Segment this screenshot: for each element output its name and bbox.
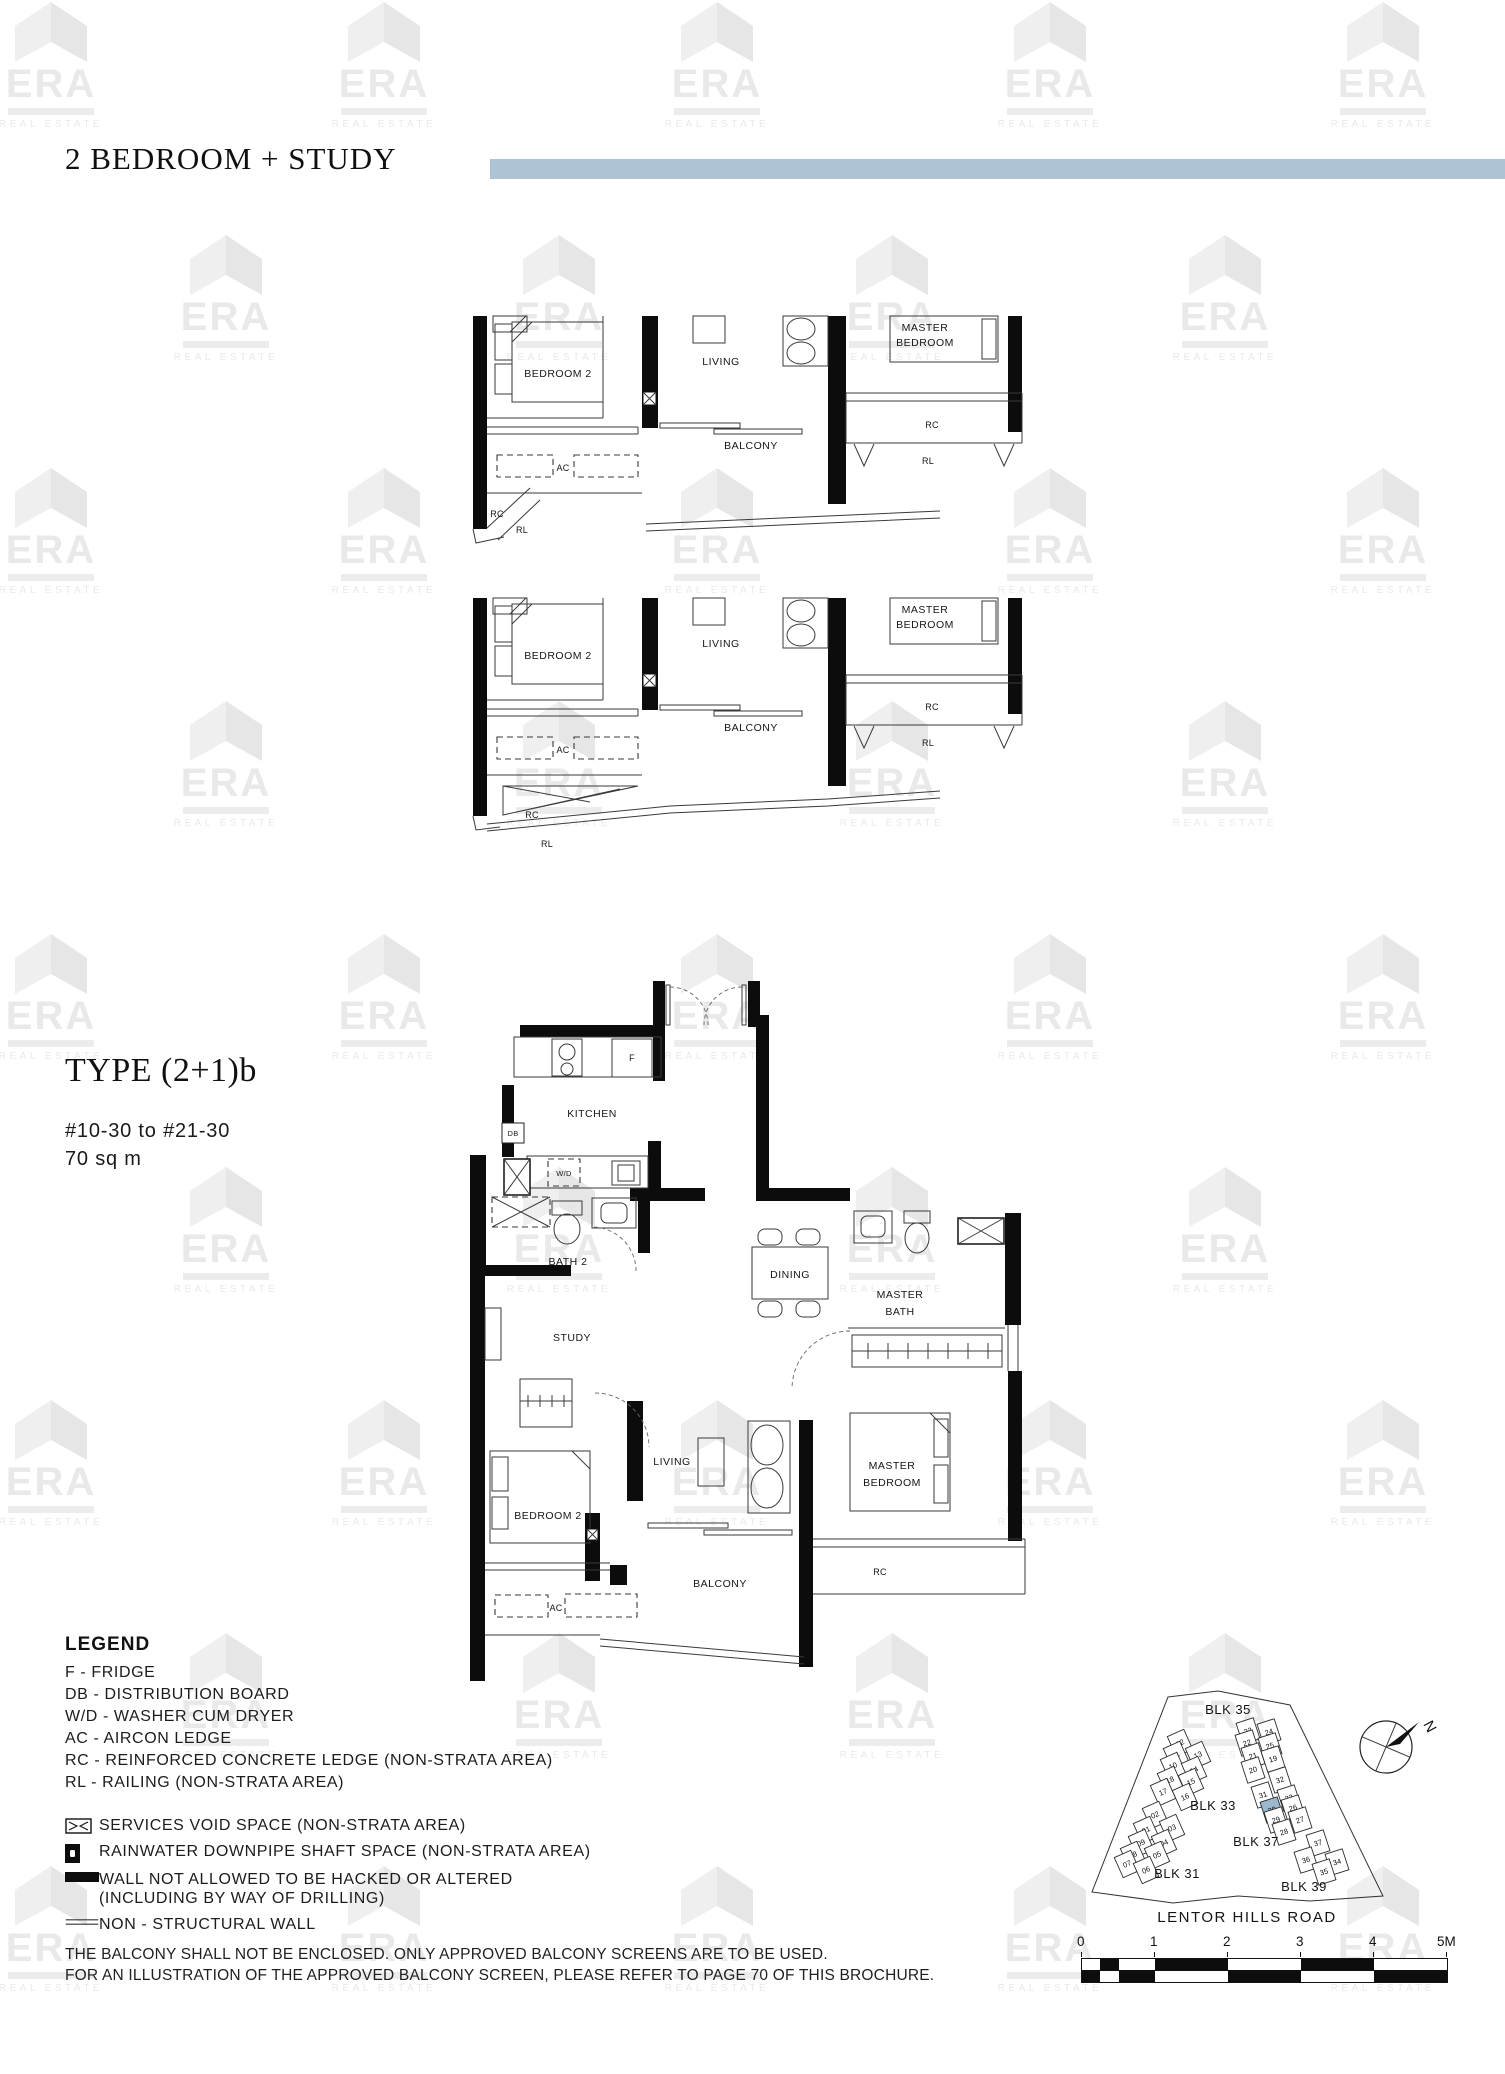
room-label-bedroom: BEDROOM <box>896 337 954 349</box>
room-label-bedroom2: BEDROOM 2 <box>524 368 592 380</box>
scale-segment <box>1100 1959 1119 1970</box>
sink <box>861 1216 885 1237</box>
label-ac: AC <box>549 1603 562 1613</box>
stove <box>552 1039 582 1076</box>
scale-segment <box>1119 1959 1155 1970</box>
room-label-master: MASTER <box>902 604 949 616</box>
disclaimer: THE BALCONY SHALL NOT BE ENCLOSED. ONLY … <box>65 1944 934 1986</box>
bedroom2-furniture <box>487 598 603 700</box>
room-label-bedroom: BEDROOM <box>896 619 954 631</box>
scale-segment <box>1228 1971 1301 1982</box>
label-rc: RC <box>925 702 939 712</box>
label-rc: RC <box>490 509 504 519</box>
room-label-kitchen: KITCHEN <box>567 1108 617 1120</box>
block-label-31: BLK 31 <box>1154 1866 1200 1881</box>
ac-ledge <box>574 455 638 477</box>
scale-segment <box>1082 1959 1100 1970</box>
ac-ledge <box>497 455 553 477</box>
floor-plan-upper-1: BEDROOM 2 AC RC RL BALCONY LIVING MASTER… <box>470 316 1030 566</box>
legend-symbol-label2: (INCLUDING BY WAY OF DRILLING) <box>99 1890 385 1907</box>
legend-item: DB - DISTRIBUTION BOARD <box>65 1684 625 1706</box>
legend-symbol-label: SERVICES VOID SPACE (NON-STRATA AREA) <box>99 1816 466 1835</box>
scale-segment <box>1374 1971 1447 1982</box>
label-rc: RC <box>925 420 939 430</box>
scale-segment <box>1155 1971 1228 1982</box>
scale-segment <box>1082 1971 1100 1982</box>
block-label-37: BLK 37 <box>1233 1834 1279 1849</box>
toilet <box>554 1214 580 1244</box>
study-shelf <box>485 1308 501 1360</box>
scale-labels: 0 1 2 3 4 5M <box>1081 1934 1461 1952</box>
legend-symbol-label: RAINWATER DOWNPIPE SHAFT SPACE (NON-STRA… <box>99 1842 591 1861</box>
unit-type-name: TYPE (2+1)b <box>65 1052 257 1090</box>
unit-floor-range: #10-30 to #21-30 <box>65 1120 230 1143</box>
scale-label: 3 <box>1296 1934 1304 1949</box>
label-ac: AC <box>556 745 569 755</box>
label-db: DB <box>507 1129 518 1138</box>
scale-label: 0 <box>1077 1934 1085 1949</box>
room-label-bath2: BATH 2 <box>549 1256 588 1268</box>
bath2-door-arc <box>592 1227 636 1271</box>
bedroom2-furniture <box>487 316 603 418</box>
scale-bar: 0 1 2 3 4 5M <box>1081 1934 1461 1952</box>
compass-icon: N <box>1352 1713 1440 1781</box>
hack-wall-icon <box>65 1872 99 1882</box>
disclaimer-line-2: FOR AN ILLUSTRATION OF THE APPROVED BALC… <box>65 1965 934 1986</box>
scale-segment <box>1228 1959 1301 1970</box>
room-label-balcony: BALCONY <box>724 722 778 734</box>
scale-label: 2 <box>1223 1934 1231 1949</box>
room-label-study: STUDY <box>553 1332 591 1344</box>
legend: LEGEND F - FRIDGE DB - DISTRIBUTION BOAR… <box>65 1634 625 1934</box>
disclaimer-line-1: THE BALCONY SHALL NOT BE ENCLOSED. ONLY … <box>65 1944 934 1965</box>
sofa <box>748 1421 790 1513</box>
toilet <box>905 1223 929 1253</box>
entry-door-arc <box>670 987 708 1025</box>
legend-symbol-label: WALL NOT ALLOWED TO BE HACKED OR ALTERED <box>99 1871 513 1888</box>
label-fridge: F <box>629 1053 635 1063</box>
services-void-icon <box>65 1818 99 1834</box>
tv-console <box>698 1438 724 1486</box>
label-ac: AC <box>556 463 569 473</box>
walls <box>470 981 1022 1681</box>
room-label-master-bath-2: BATH <box>885 1306 914 1318</box>
floor-plan-main: F KITCHEN DB W/D BATH 2 STUDY <box>452 973 1032 1713</box>
room-label-master-1: MASTER <box>869 1460 916 1472</box>
room-label-bedroom2: BEDROOM 2 <box>524 650 592 662</box>
label-rl: RL <box>516 525 528 535</box>
floor-plan-upper-2: BEDROOM 2 AC RC RL BALCONY LIVING MASTER… <box>470 598 1030 866</box>
unit-area: 70 sq m <box>65 1148 142 1171</box>
room-label-balcony: BALCONY <box>693 1578 747 1590</box>
ac-ledge <box>565 1594 637 1617</box>
brochure-page: ERAREAL ESTATEERAREAL ESTATEERAREAL ESTA… <box>0 0 1505 2074</box>
label-rl: RL <box>922 456 934 466</box>
block-label-35: BLK 35 <box>1205 1702 1251 1717</box>
room-label-dining: DINING <box>770 1269 810 1281</box>
block-label-33: BLK 33 <box>1190 1798 1236 1813</box>
room-label-living: LIVING <box>702 356 739 368</box>
room-label-master: MASTER <box>902 322 949 334</box>
room-label-living: LIVING <box>702 638 739 650</box>
sink <box>601 1203 627 1223</box>
room-label-bedroom2: BEDROOM 2 <box>514 1510 582 1522</box>
legend-item: AC - AIRCON LEDGE <box>65 1728 625 1750</box>
legend-symbol-label: NON - STRUCTURAL WALL <box>99 1915 316 1934</box>
label-rc: RC <box>873 1567 887 1577</box>
scale-segment <box>1155 1959 1228 1970</box>
compass-north-label: N <box>1419 1718 1439 1736</box>
scale-label: 5M <box>1437 1934 1456 1949</box>
ac-ledge <box>497 737 553 759</box>
room-label-master-bath-1: MASTER <box>877 1289 924 1301</box>
legend-heading: LEGEND <box>65 1634 625 1656</box>
label-rc: RC <box>525 810 539 820</box>
entry-door-arc <box>704 987 742 1025</box>
room-label-master-2: BEDROOM <box>863 1477 921 1489</box>
scale-label: 1 <box>1150 1934 1158 1949</box>
label-rl: RL <box>541 839 553 849</box>
scale-label: 4 <box>1369 1934 1377 1949</box>
legend-item: RL - RAILING (NON-STRATA AREA) <box>65 1772 625 1794</box>
room-label-living: LIVING <box>653 1456 690 1468</box>
page-title: 2 BEDROOM + STUDY <box>65 141 397 177</box>
ac-ledge <box>574 737 638 759</box>
ac-ledge <box>495 1595 548 1617</box>
label-rl: RL <box>922 738 934 748</box>
label-wd: W/D <box>556 1169 572 1178</box>
scale-segment <box>1100 1971 1119 1982</box>
legend-item: RC - REINFORCED CONCRETE LEDGE (NON-STRA… <box>65 1750 625 1772</box>
legend-item: W/D - WASHER CUM DRYER <box>65 1706 625 1728</box>
header-accent-bar <box>490 159 1505 179</box>
master-bath-door-arc <box>792 1331 850 1389</box>
scale-segment <box>1301 1959 1374 1970</box>
non-structural-wall-icon <box>65 1917 99 1927</box>
road-label: LENTOR HILLS ROAD <box>1157 1909 1336 1926</box>
room-label-balcony: BALCONY <box>724 440 778 452</box>
block-label-39: BLK 39 <box>1281 1879 1327 1894</box>
scale-segment <box>1119 1971 1155 1982</box>
legend-item: F - FRIDGE <box>65 1662 625 1684</box>
scale-segment <box>1301 1971 1374 1982</box>
scale-segment <box>1374 1959 1447 1970</box>
rainwater-downpipe-icon <box>65 1844 99 1863</box>
